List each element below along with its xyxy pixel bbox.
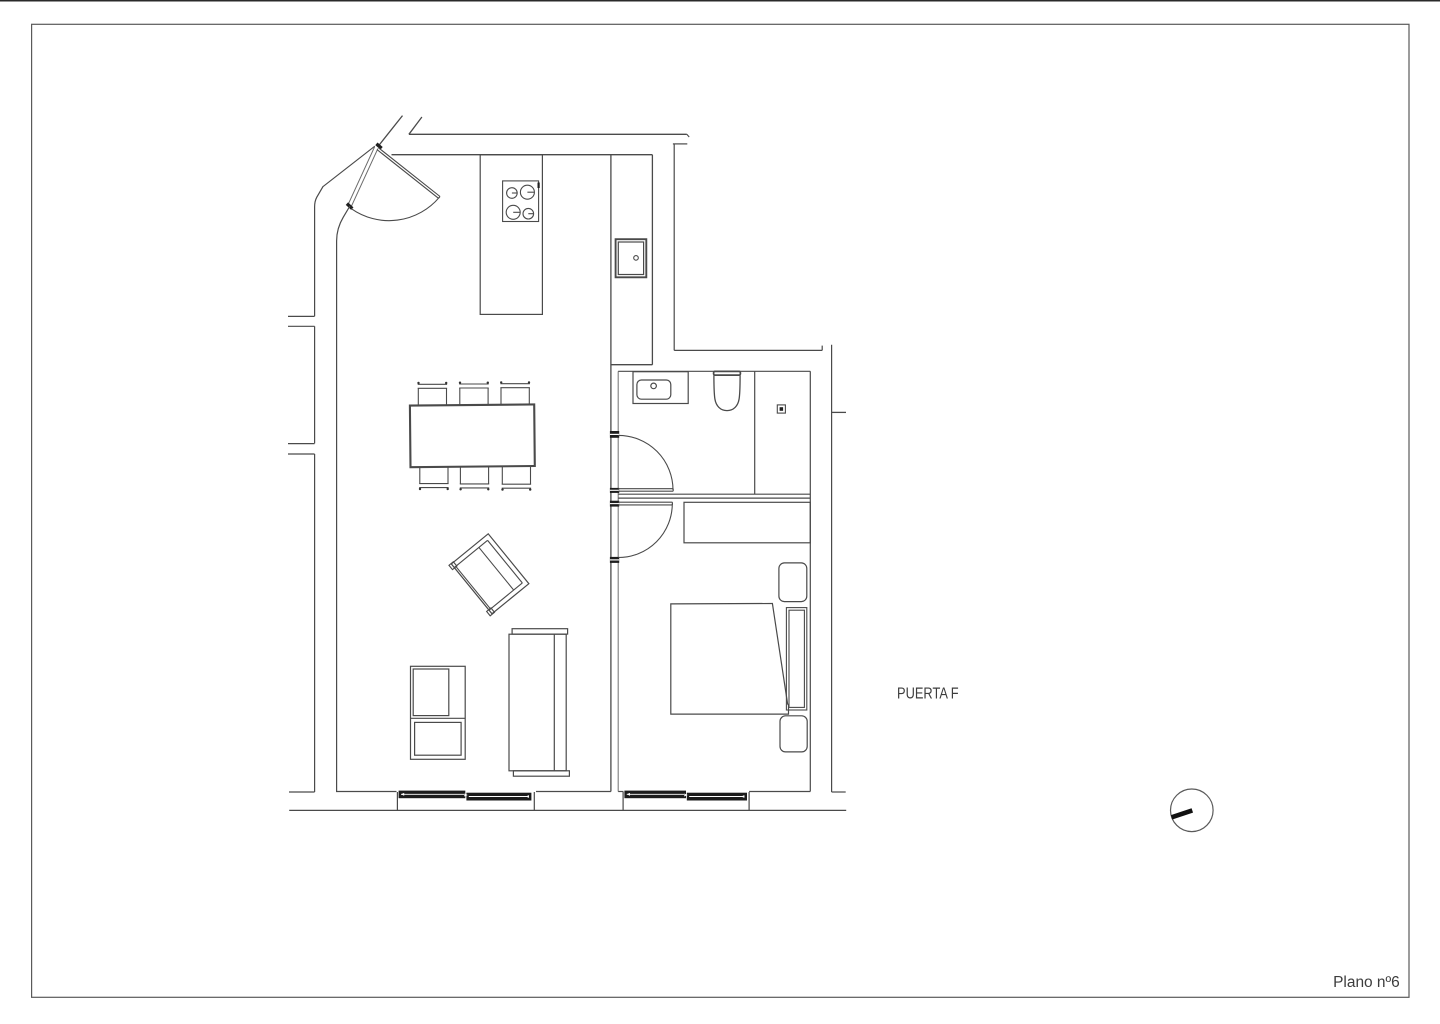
svg-text:Plano nº6: Plano nº6	[1333, 974, 1400, 991]
svg-text:PUERTA F: PUERTA F	[897, 686, 959, 703]
